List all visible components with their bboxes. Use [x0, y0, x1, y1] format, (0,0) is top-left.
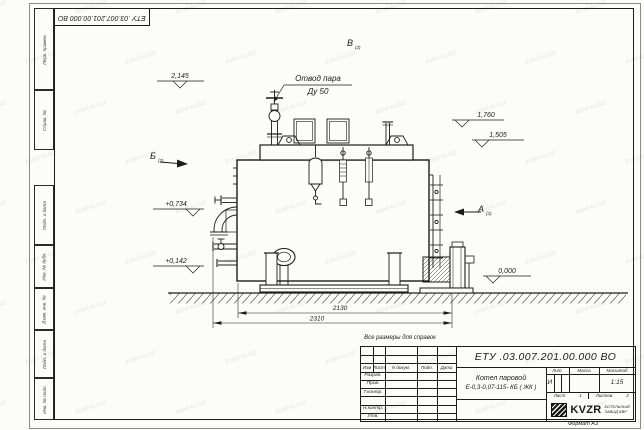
- mass-value: [569, 374, 599, 393]
- col-izm: Изм: [361, 363, 373, 371]
- margin-stamp-sprav-no: Справ. №: [34, 90, 54, 150]
- row-tcontrol: Т.контр.: [361, 388, 385, 396]
- lit-value: И: [546, 374, 554, 393]
- row-developed: Разраб.: [361, 372, 385, 380]
- doc-number: ЕТУ .03.007.201.00.000 ВО: [456, 347, 635, 367]
- top-stamp-number-box: ЕТУ .03.007.201.00.000 ВО: [54, 8, 150, 26]
- margin-stamp-perv-primen: Перв. примен.: [34, 8, 54, 90]
- scale-value: 1:15: [599, 374, 635, 393]
- reference-note: Все размеры для справок: [340, 335, 460, 341]
- sheets-value: 2: [620, 392, 635, 399]
- col-date: Дата: [437, 363, 456, 371]
- top-stamp-number: ЕТУ .03.007.201.00.000 ВО: [58, 14, 146, 21]
- format-label: Формат А3: [548, 421, 618, 427]
- row-ncontrol: Н.контр.: [361, 405, 385, 413]
- margin-stamp-podp-data1: Подп. и дата: [34, 185, 54, 245]
- row-checked: Пров.: [361, 380, 385, 388]
- margin-stamp-inv-dubl: Инв. № дубл.: [34, 245, 54, 288]
- product-name: Котел паровой Е-0,3-0,07-115- КБ ( ЖК ): [456, 367, 546, 399]
- col-doc: N докум.: [385, 363, 417, 371]
- margin-stamp-inv-podl: Инв. № подл.: [34, 378, 54, 420]
- kvzr-logo-text: KVZR: [570, 404, 601, 416]
- margin-stamp-podp-data2: Подп. и дата: [34, 330, 54, 378]
- sheets-label: Листов: [588, 392, 620, 399]
- row-approved: Утв.: [361, 413, 385, 421]
- kvzr-logo-icon: [551, 403, 567, 417]
- sheet-value: 1: [573, 392, 588, 399]
- sheet-label: Лист: [546, 392, 573, 399]
- drawing-sheet: kotel-kv.bizkotel-kv.bizkotel-kv.bizkote…: [0, 0, 644, 430]
- title-block: Изм Лист N докум. Подп. Дата Разраб. Про…: [360, 346, 636, 422]
- col-sign: Подп.: [417, 363, 437, 371]
- col-list: Лист: [373, 363, 385, 371]
- margin-stamp-vzam-inv: Взам. инв. №: [34, 288, 54, 330]
- company-cell: KVZR КОТЕЛЬНЫЙ ЗАВОД КВР: [546, 399, 635, 421]
- company-caption: КОТЕЛЬНЫЙ ЗАВОД КВР: [604, 405, 629, 415]
